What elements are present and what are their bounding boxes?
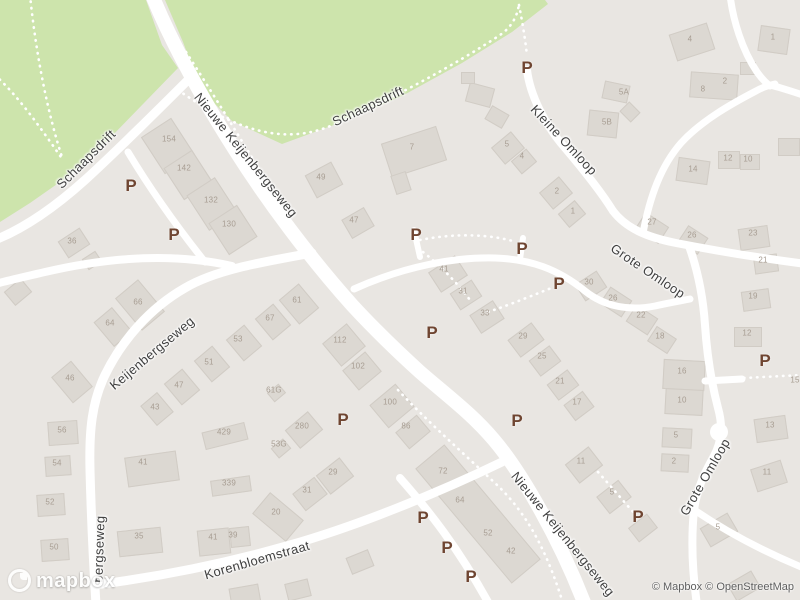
street-label: Keijenbergseweg	[107, 313, 198, 392]
map-canvas[interactable]: 15414213213036494775A5B54214128141210272…	[0, 0, 800, 600]
street-label: Schaapsdrift	[330, 83, 406, 129]
street-label: Grote Omloop	[608, 241, 688, 302]
street-label: Kleine Omloop	[528, 102, 601, 178]
street-label: Schaapsdrift	[53, 126, 118, 191]
mapbox-logo-text: mapbox	[36, 571, 116, 591]
street-label: Nieuwe Keijenbergseweg	[191, 90, 301, 220]
street-label: Grote Omloop	[677, 436, 733, 518]
map-attribution[interactable]: © Mapbox © OpenStreetMap	[652, 581, 794, 593]
street-labels-layer: SchaapsdriftNieuwe KeijenbergsewegSchaap…	[0, 0, 800, 600]
mapbox-logo[interactable]: mapbox	[8, 569, 116, 592]
street-label: Korenbloemstraat	[203, 538, 312, 582]
mapbox-logo-icon	[8, 569, 31, 592]
street-label: Nieuwe Keijenbergseweg	[508, 469, 618, 599]
